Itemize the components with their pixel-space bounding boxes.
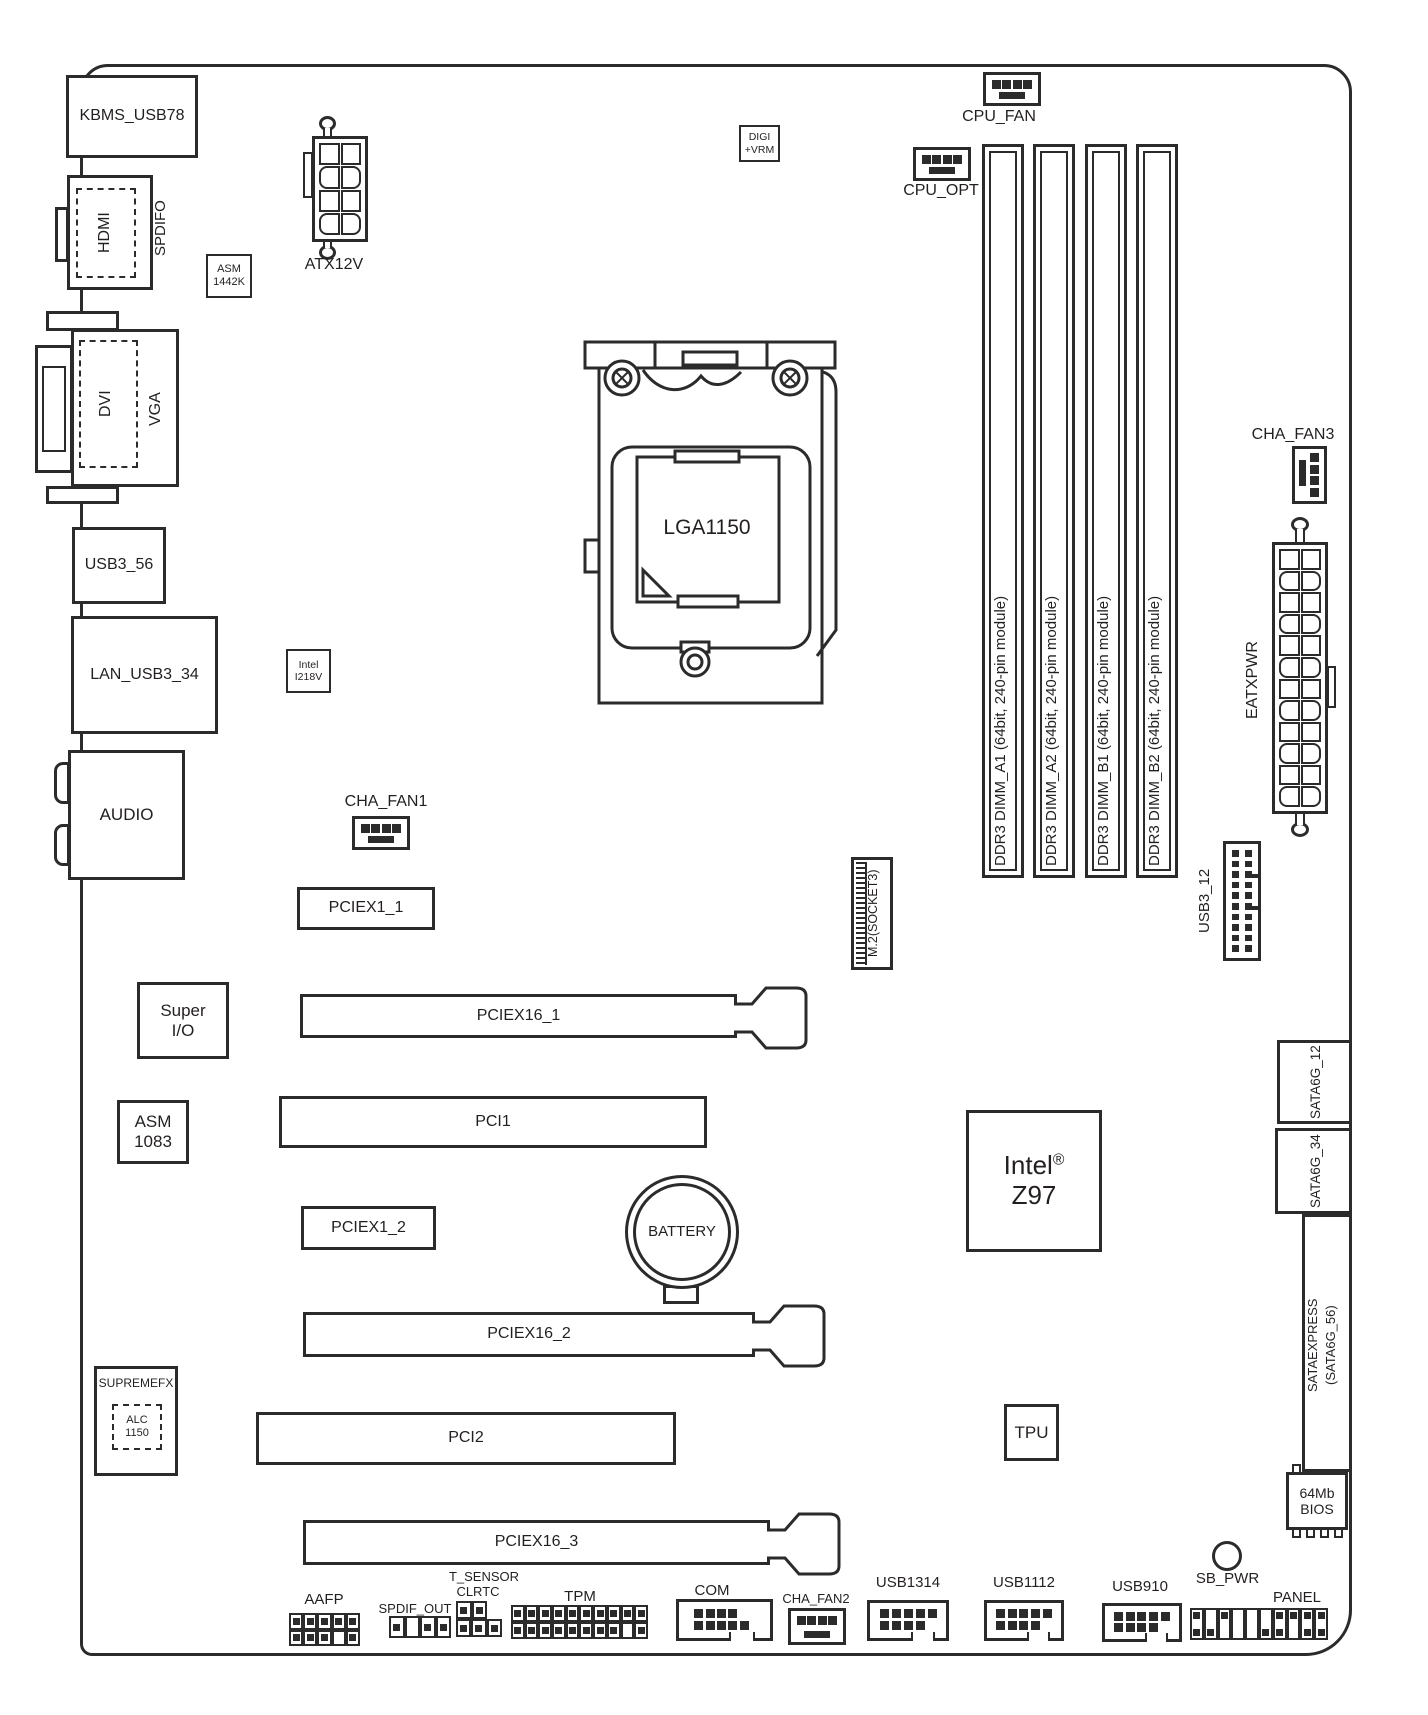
chip-intel-z97: Intel® Z97: [966, 1110, 1102, 1252]
dvi-label: DVI: [97, 345, 119, 463]
aafp-label: AAFP: [288, 1591, 360, 1608]
registered-mark: ®: [1053, 1151, 1065, 1168]
eatxpwr-side-tab: [1327, 666, 1336, 708]
kbms-label: KBMS_USB78: [80, 107, 185, 125]
cpu-opt-header: [913, 147, 971, 181]
io-lan-usb3-34: LAN_USB3_34: [71, 616, 218, 734]
m2-label: M.2(SOCKET3): [866, 860, 888, 967]
cpu-opt-label: CPU_OPT: [897, 182, 985, 200]
sb-pwr-led: [1212, 1541, 1242, 1571]
chip-asm1442k: ASM 1442K: [206, 254, 252, 298]
chip-alc1150: ALC 1150: [112, 1404, 162, 1450]
chip-asm1083: ASM 1083: [117, 1100, 189, 1164]
sataexpress-label-2: (SATA6G_56): [1324, 1250, 1344, 1440]
usb1314-label: USB1314: [864, 1574, 952, 1591]
supremefx-label: SUPREMEFX: [97, 1377, 175, 1391]
atx12v-label: ATX12V: [295, 256, 373, 274]
chip-intel-i218v: Intel I218V: [286, 649, 331, 693]
io-audio: AUDIO: [68, 750, 185, 880]
sata6g-34-label: SATA6G_34: [1308, 1132, 1330, 1210]
clrtc-label: CLRTC: [453, 1585, 503, 1600]
pciex16-3-latch: [767, 1512, 847, 1576]
slot-pciex16-1: PCIEX16_1: [300, 994, 737, 1038]
dimm-b2-label: DDR3 DIMM_B2 (64bit, 240-pin module): [1146, 152, 1168, 866]
aafp-header: [289, 1613, 360, 1646]
t-sensor-label: T_SENSOR: [443, 1570, 525, 1585]
spdifo-label: SPDIFO: [152, 180, 176, 276]
cha-fan1-header: [352, 816, 410, 850]
t-sensor-header: [456, 1601, 487, 1619]
panel-header: [1190, 1608, 1328, 1640]
dvi-flange-bottom: [46, 486, 119, 504]
sata6g-12-label: SATA6G_12: [1308, 1044, 1330, 1120]
io-usb3-56: USB3_56: [72, 527, 166, 604]
spdif-out-label: SPDIF_OUT: [374, 1602, 456, 1617]
tpm-header: [511, 1605, 648, 1639]
cha-fan3-label: CHA_FAN3: [1249, 426, 1337, 444]
lan-label: LAN_USB3_34: [90, 666, 199, 684]
audio-label: AUDIO: [100, 805, 154, 825]
usb3-12-label: USB3_12: [1196, 848, 1220, 954]
usb910-label: USB910: [1096, 1578, 1184, 1595]
com-header: [676, 1599, 773, 1641]
cha-fan3-header: [1292, 446, 1327, 504]
dimm-a1-label: DDR3 DIMM_A1 (64bit, 240-pin module): [992, 152, 1014, 866]
sb-pwr-label: SB_PWR: [1180, 1570, 1275, 1587]
lga1150-label: LGA1150: [640, 516, 774, 540]
spdif-out-header: [389, 1616, 451, 1638]
slot-pciex16-2: PCIEX16_2: [303, 1312, 755, 1357]
chip-tpu: TPU: [1004, 1404, 1059, 1461]
slot-pciex16-3: PCIEX16_3: [303, 1520, 770, 1565]
pciex16-1-latch: [734, 986, 814, 1050]
slot-pciex1-1: PCIEX1_1: [297, 887, 435, 930]
usb1112-label: USB1112: [980, 1574, 1068, 1591]
pciex16-2-latch: [752, 1304, 832, 1368]
dvi-port-inner: [42, 366, 66, 452]
vga-label: VGA: [147, 350, 171, 468]
clrtc-header: [456, 1619, 502, 1637]
io-kbms-usb78: KBMS_USB78: [66, 75, 198, 158]
eatxpwr-connector: [1272, 542, 1328, 814]
dimm-a2-label: DDR3 DIMM_A2 (64bit, 240-pin module): [1043, 152, 1065, 866]
chip-digi-vrm: DIGI +VRM: [739, 125, 780, 162]
usb910-header: [1102, 1603, 1182, 1642]
cha-fan1-label: CHA_FAN1: [342, 793, 430, 811]
dvi-flange-top: [46, 311, 119, 331]
panel-label: PANEL: [1262, 1589, 1332, 1606]
usb1314-header: [867, 1600, 949, 1641]
cha-fan2-header: [788, 1608, 846, 1645]
battery-label: BATTERY: [648, 1223, 716, 1240]
motherboard-layout-diagram: KBMS_USB78 HDMI SPDIFO DVI VGA USB3_56 L…: [0, 0, 1428, 1715]
cha-fan2-label: CHA_FAN2: [772, 1592, 860, 1607]
cpu-fan-header: [983, 72, 1041, 106]
tpm-label: TPM: [544, 1588, 616, 1605]
usb1112-header: [984, 1600, 1064, 1641]
usb3-12-header: [1223, 841, 1261, 961]
usb3-56-label: USB3_56: [85, 556, 154, 574]
chip-super-io: Super I/O: [137, 982, 229, 1059]
eatxpwr-label: EATXPWR: [1244, 600, 1268, 760]
atx12v-connector: [312, 136, 368, 242]
cpu-fan-label: CPU_FAN: [955, 108, 1043, 126]
com-label: COM: [676, 1582, 748, 1599]
slot-pciex1-2: PCIEX1_2: [301, 1206, 436, 1250]
battery-inner: BATTERY: [633, 1183, 731, 1281]
slot-pci1: PCI1: [279, 1096, 707, 1148]
dimm-b1-label: DDR3 DIMM_B1 (64bit, 240-pin module): [1095, 152, 1117, 866]
slot-pci2: PCI2: [256, 1412, 676, 1465]
hdmi-label: HDMI: [96, 190, 118, 276]
chip-64mb-bios: 64Mb BIOS: [1286, 1472, 1348, 1530]
